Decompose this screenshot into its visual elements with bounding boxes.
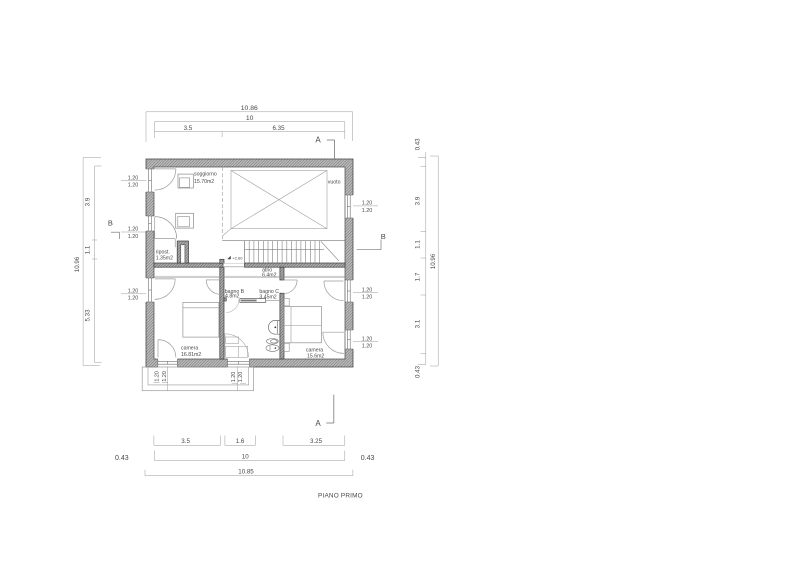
svg-text:3.5: 3.5 bbox=[181, 438, 190, 445]
svg-text:5.33: 5.33 bbox=[85, 309, 92, 322]
svg-text:10: 10 bbox=[246, 115, 254, 122]
svg-text:ripost.: ripost. bbox=[156, 249, 170, 255]
svg-text:16.81m2: 16.81m2 bbox=[181, 352, 201, 358]
svg-text:3.25: 3.25 bbox=[310, 438, 323, 445]
svg-text:vuoto: vuoto bbox=[328, 180, 341, 186]
svg-text:1.6: 1.6 bbox=[236, 438, 245, 445]
svg-text:0.43: 0.43 bbox=[414, 138, 421, 151]
svg-text:3.45m2: 3.45m2 bbox=[259, 294, 276, 300]
svg-text:3.9: 3.9 bbox=[85, 197, 92, 206]
svg-text:3.1: 3.1 bbox=[415, 319, 422, 328]
svg-text:1.20: 1.20 bbox=[128, 183, 139, 189]
svg-text:15.6m2: 15.6m2 bbox=[307, 354, 324, 360]
svg-text:0.43: 0.43 bbox=[115, 455, 129, 462]
svg-text:1.20: 1.20 bbox=[362, 287, 373, 293]
svg-text:PIANO PRIMO: PIANO PRIMO bbox=[318, 492, 363, 499]
svg-text:0.43: 0.43 bbox=[361, 455, 375, 462]
svg-text:1.1: 1.1 bbox=[85, 245, 92, 254]
svg-text:A: A bbox=[315, 419, 321, 428]
svg-text:0.43: 0.43 bbox=[415, 365, 422, 378]
svg-text:1.20: 1.20 bbox=[128, 175, 139, 181]
svg-text:1.35m2: 1.35m2 bbox=[156, 256, 173, 262]
svg-text:10.85: 10.85 bbox=[238, 469, 254, 476]
svg-text:+2.60: +2.60 bbox=[232, 256, 243, 261]
svg-text:1.20: 1.20 bbox=[362, 201, 373, 207]
svg-text:1.20: 1.20 bbox=[162, 371, 168, 382]
svg-text:15.70m2: 15.70m2 bbox=[194, 179, 214, 185]
svg-text:1.20: 1.20 bbox=[128, 227, 139, 233]
svg-text:3.5: 3.5 bbox=[184, 125, 193, 132]
svg-text:soggiorno: soggiorno bbox=[194, 171, 217, 177]
svg-text:A: A bbox=[315, 136, 321, 145]
svg-text:1.1: 1.1 bbox=[415, 240, 422, 249]
svg-text:6.4m2: 6.4m2 bbox=[262, 273, 277, 279]
svg-text:1.20: 1.20 bbox=[155, 371, 161, 382]
svg-text:6.35: 6.35 bbox=[272, 125, 285, 132]
svg-text:B: B bbox=[108, 218, 113, 227]
svg-text:camera: camera bbox=[306, 347, 323, 353]
svg-text:1.20: 1.20 bbox=[128, 296, 139, 302]
svg-text:4.8m2: 4.8m2 bbox=[225, 294, 240, 300]
svg-text:10.86: 10.86 bbox=[241, 105, 258, 112]
svg-text:1.20: 1.20 bbox=[362, 336, 373, 342]
svg-text:camera: camera bbox=[181, 345, 198, 351]
svg-text:10: 10 bbox=[242, 453, 249, 460]
svg-text:10.96: 10.96 bbox=[74, 256, 81, 272]
svg-text:1.20: 1.20 bbox=[362, 344, 373, 350]
svg-text:10.96: 10.96 bbox=[430, 253, 437, 269]
svg-text:B: B bbox=[381, 232, 386, 241]
svg-text:1.7: 1.7 bbox=[415, 272, 422, 281]
svg-text:1.20: 1.20 bbox=[362, 208, 373, 214]
svg-text:1.20: 1.20 bbox=[128, 234, 139, 240]
svg-text:1.20: 1.20 bbox=[128, 289, 139, 295]
svg-text:1.20: 1.20 bbox=[231, 372, 237, 383]
svg-text:3.9: 3.9 bbox=[415, 196, 422, 205]
svg-text:1.20: 1.20 bbox=[238, 372, 244, 383]
svg-text:1.20: 1.20 bbox=[362, 295, 373, 301]
